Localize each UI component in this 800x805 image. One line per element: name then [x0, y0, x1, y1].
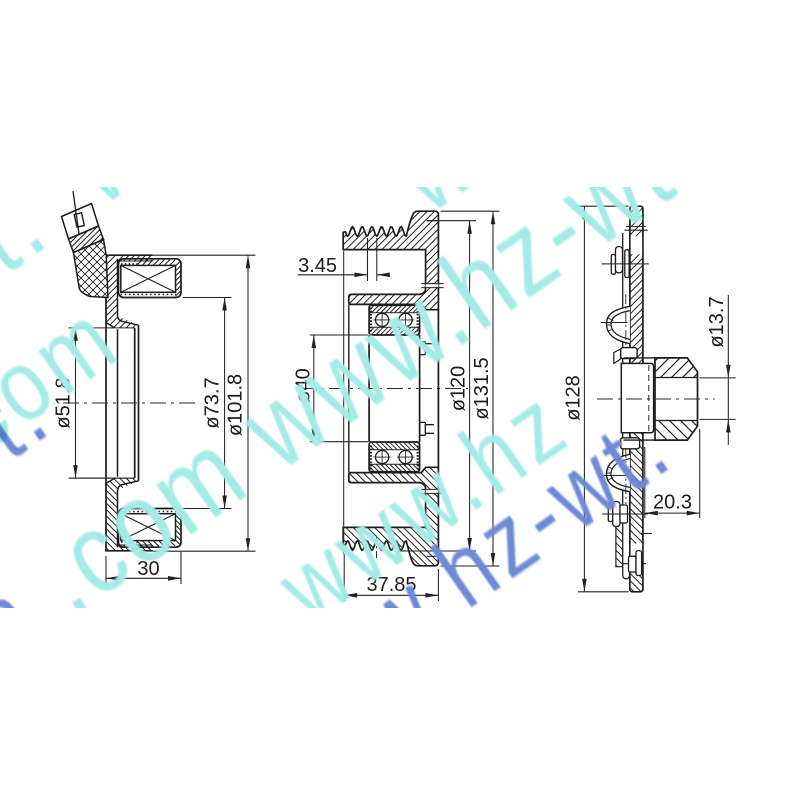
svg-text:ø128: ø128 — [563, 375, 585, 421]
svg-text:3.45: 3.45 — [298, 255, 337, 277]
svg-text:ø13.7: ø13.7 — [706, 296, 728, 347]
